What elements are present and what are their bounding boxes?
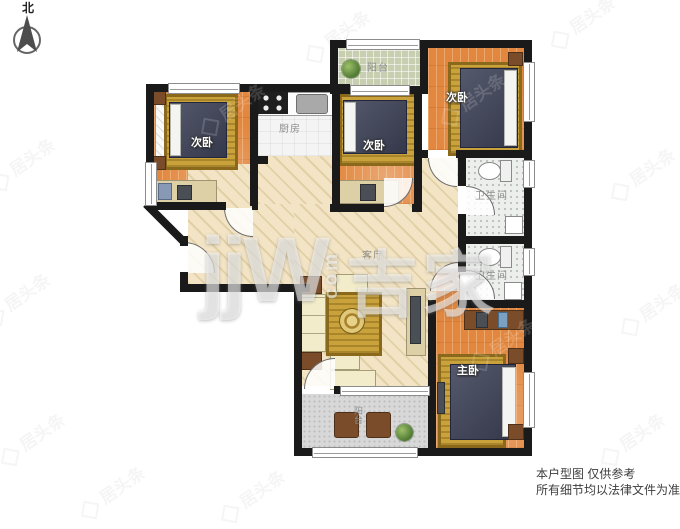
disclaimer-line2: 所有细节均以法律文件为准 — [536, 482, 680, 498]
kitchen-label: 厨房 — [279, 120, 301, 135]
watermark-tile: 居头条 — [545, 0, 620, 52]
wall — [334, 156, 340, 164]
bedroom-right-pillow — [504, 70, 517, 146]
window — [523, 372, 535, 428]
wall — [456, 150, 532, 158]
wall — [180, 236, 188, 246]
window — [346, 39, 420, 50]
window — [340, 386, 430, 396]
nightstand — [508, 424, 524, 440]
house-icon — [621, 317, 640, 336]
coffee-table — [339, 308, 365, 334]
toilet-icon — [478, 248, 501, 266]
desk-computer — [158, 183, 172, 200]
toilet-tank — [500, 246, 512, 268]
toilet-tank — [500, 160, 512, 182]
master-shelf — [464, 310, 524, 330]
wall — [466, 236, 532, 244]
sink-icon — [504, 282, 522, 300]
nightstand — [508, 348, 524, 364]
watermark-tile: 居头条 — [0, 406, 69, 469]
stove-icon — [258, 92, 288, 114]
balcony-top-label: 阳台 — [367, 59, 389, 74]
plant-icon — [342, 60, 360, 78]
watermark-tile: 居头条 — [75, 459, 150, 522]
wall — [250, 156, 268, 164]
watermark-tile: 居头条 — [605, 141, 680, 204]
watermark-tile: 居头条 — [215, 463, 290, 526]
balcony-chair — [366, 412, 391, 438]
bedroom-mid-pillow — [344, 102, 356, 152]
living-floor — [258, 156, 332, 204]
shelf-item — [476, 312, 488, 328]
floor-plan-page: { "meta": { "type": "residential-floor-p… — [0, 0, 680, 510]
house-icon — [306, 44, 325, 63]
wall — [294, 386, 302, 394]
wall — [250, 84, 258, 206]
wall — [458, 158, 466, 186]
compass-north: 北 — [8, 2, 48, 61]
bedroom-right-label: 次卧 — [446, 89, 468, 105]
wall — [146, 202, 226, 210]
toilet-icon — [478, 162, 501, 180]
wall — [428, 300, 436, 456]
bedroom-mid-label: 次卧 — [363, 137, 385, 153]
balcony-bottom-floor — [302, 394, 428, 448]
bathroom-lower-label: 卫生间 — [475, 267, 508, 282]
house-icon — [0, 307, 4, 326]
desk-item — [360, 184, 376, 201]
wall — [414, 86, 422, 212]
disclaimer: 本户型图 仅供参考 所有细节均以法律文件为准 — [536, 466, 680, 498]
window — [145, 162, 157, 206]
house-icon — [1, 447, 20, 466]
wall — [180, 284, 310, 292]
disclaimer-line1: 本户型图 仅供参考 — [536, 466, 680, 482]
wall — [458, 300, 532, 308]
watermark-tile: 居头条 — [615, 276, 680, 339]
watermark-tile: 居头条 — [0, 266, 54, 329]
bedroom-left-pillow — [170, 104, 181, 156]
plant-icon — [396, 424, 413, 441]
wall — [252, 202, 258, 210]
house-icon — [611, 182, 630, 201]
window — [168, 83, 240, 94]
watermark-tile: 居头条 — [0, 131, 59, 194]
window — [350, 85, 410, 96]
sink-icon — [505, 216, 523, 234]
balcony-bottom-label: 阳台 — [352, 406, 365, 424]
tv-icon — [410, 296, 421, 344]
shelf-item — [498, 312, 508, 328]
compass-icon — [8, 14, 48, 56]
house-icon — [221, 504, 240, 523]
window — [523, 62, 535, 122]
bedroom-left-label: 次卧 — [191, 134, 213, 150]
wall — [458, 214, 466, 272]
house-icon — [551, 30, 570, 49]
wall — [332, 84, 340, 212]
kitchen-sink — [296, 94, 328, 114]
window — [523, 248, 535, 276]
window — [312, 447, 418, 458]
window — [523, 160, 535, 188]
compass-north-label: 北 — [8, 2, 48, 14]
wall — [294, 284, 302, 456]
watermark-tile: 居头条 — [595, 406, 670, 469]
wall — [330, 204, 384, 212]
house-icon — [0, 172, 9, 191]
wall — [412, 204, 422, 212]
nightstand — [508, 52, 523, 66]
desk-chair — [177, 185, 192, 200]
master-label: 主卧 — [457, 362, 479, 378]
living-label: 客厅 — [362, 247, 384, 262]
wall-tv-icon — [437, 382, 445, 414]
bathroom-upper-label: 卫生间 — [475, 187, 508, 202]
house-icon — [601, 447, 620, 466]
